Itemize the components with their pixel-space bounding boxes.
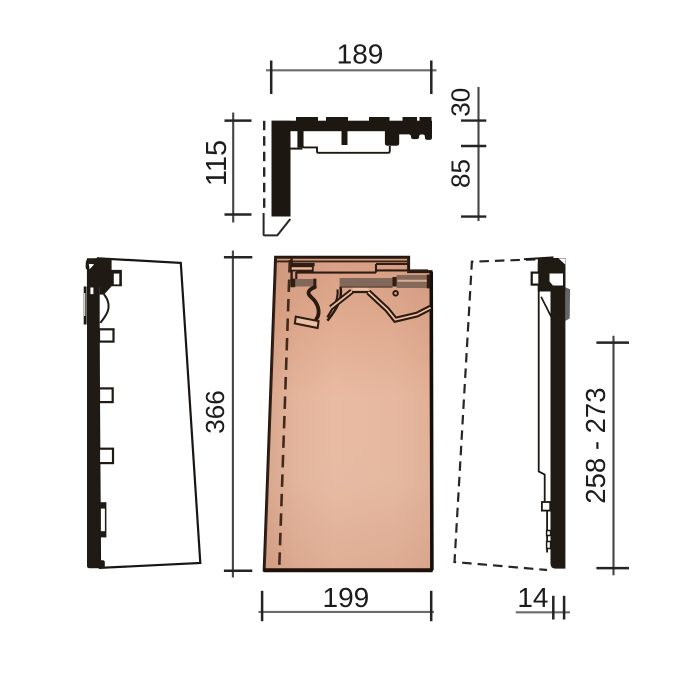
svg-text:199: 199 — [323, 582, 370, 613]
svg-text:85: 85 — [446, 159, 476, 188]
svg-text:30: 30 — [446, 88, 476, 117]
svg-text:366: 366 — [200, 390, 230, 433]
svg-text:14: 14 — [517, 582, 548, 613]
svg-text:115: 115 — [201, 140, 233, 186]
svg-text:189: 189 — [337, 39, 384, 70]
svg-text:258 - 273: 258 - 273 — [580, 387, 611, 503]
